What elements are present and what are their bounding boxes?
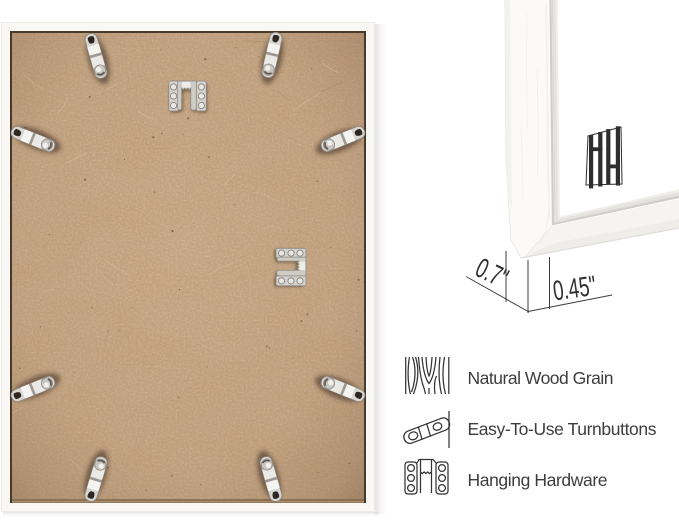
svg-text:0.45": 0.45"	[551, 270, 598, 307]
svg-text:Easy-To-Use Turnbuttons: Easy-To-Use Turnbuttons	[468, 419, 657, 439]
svg-text:Hanging Hardware: Hanging Hardware	[468, 470, 608, 490]
svg-text:Natural Wood Grain: Natural Wood Grain	[468, 368, 614, 388]
